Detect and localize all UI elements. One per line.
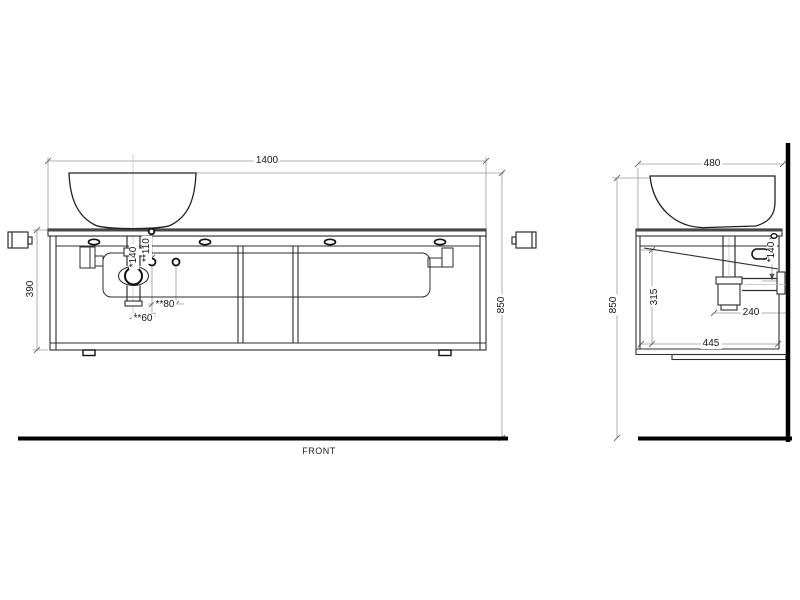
front-dim-faucet-hole-height: **110 <box>142 236 152 264</box>
front-dim-drain-drop: *140 <box>129 245 139 270</box>
front-view <box>8 154 536 441</box>
side-dim-drain-drop: *140 <box>767 240 777 265</box>
front-dim-overall-height: 850 <box>497 295 507 316</box>
side-dim-outlet-distance: 240 <box>741 308 762 318</box>
side-dim-overall-depth: 480 <box>702 159 723 169</box>
front-view-label: FRONT <box>302 446 336 456</box>
vanity-technical-drawing <box>0 0 800 600</box>
front-feet <box>83 350 451 356</box>
side-dim-interior-height: 315 <box>650 287 660 308</box>
front-dim-hole-spacing: **80 <box>154 300 177 310</box>
front-sink-outline <box>69 173 196 229</box>
front-dimension-ticks <box>34 158 505 441</box>
front-dim-overall-width: 1400 <box>254 156 280 166</box>
side-dim-overall-height: 850 <box>609 295 619 316</box>
side-dimension-lines <box>612 164 787 438</box>
side-dim-base-depth: 445 <box>701 339 722 349</box>
side-view <box>612 143 792 442</box>
side-countertop <box>636 229 782 236</box>
side-sink-outline <box>650 176 775 228</box>
technical-drawing-canvas: 1400 850 390 *140 **110 **80 **60 FRONT … <box>0 0 800 600</box>
front-countertop <box>48 229 486 236</box>
front-dim-cabinet-height: 390 <box>26 279 36 300</box>
side-drain-trap <box>716 236 788 310</box>
front-dim-hole-offset: **60 <box>132 314 155 324</box>
